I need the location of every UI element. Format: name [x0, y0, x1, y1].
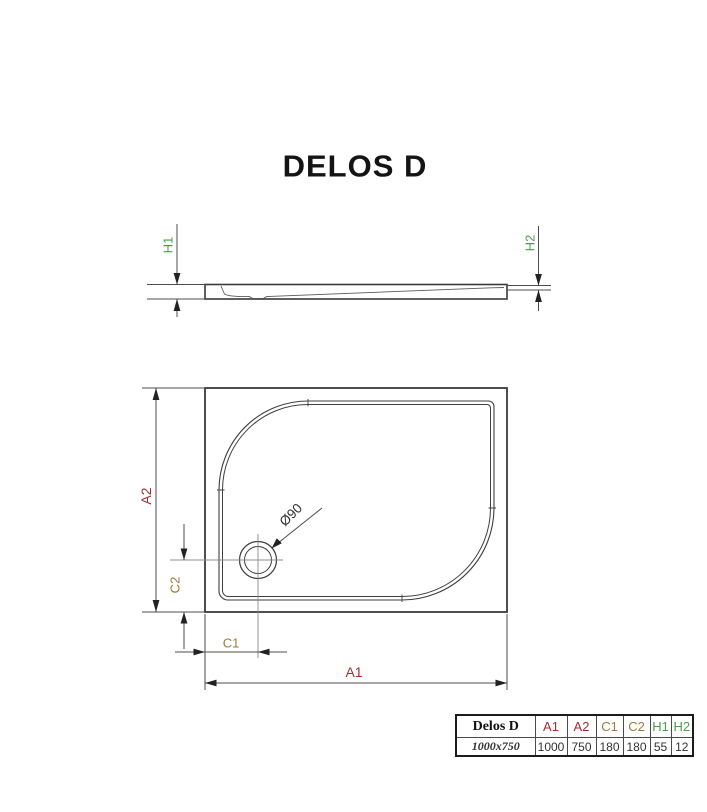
spec-value-h2: 12: [671, 738, 693, 757]
c1-arrow-left: [258, 649, 270, 656]
h1-arrow-up: [174, 299, 181, 311]
drain-leader-arrow: [272, 538, 282, 548]
spec-header-a2: A2: [567, 715, 596, 738]
spec-header-model: Delos D: [456, 715, 535, 738]
spec-header-h1: H1: [650, 715, 671, 738]
h2-dimension-label: H2: [524, 235, 537, 252]
h2-extension-lines: [507, 286, 551, 291]
c2-arrow-up: [181, 612, 188, 624]
side-view: [205, 285, 507, 300]
c1-arrow-right: [194, 649, 206, 656]
drawing-sheet: DELOS D H1 H2 A2 C2 C1 A1 Ø90 Delos D A1…: [0, 0, 707, 812]
spec-header-a1: A1: [535, 715, 567, 738]
top-view: [170, 388, 507, 658]
spec-table: Delos D A1 A2 C1 C2 H1 H2 1000x750 1000 …: [455, 714, 694, 757]
rim-segment-ticks: [217, 399, 496, 602]
h1-extension-lines: [147, 285, 205, 300]
a1-dimension: [205, 680, 507, 687]
technical-drawing: [0, 0, 707, 812]
h1-dimension: [147, 224, 205, 317]
c2-arrow-down: [181, 549, 188, 561]
a1-arrow-right: [496, 680, 508, 687]
basin-rim-outer: [219, 401, 494, 600]
a2-arrow-down: [153, 600, 160, 612]
spec-header-c1: C1: [596, 715, 623, 738]
c1-dimension-label: C1: [223, 637, 240, 650]
spec-header-h2: H2: [671, 715, 693, 738]
a2-dimension-label: A2: [139, 487, 153, 504]
c1-dimension: [175, 614, 507, 690]
spec-value-h1: 55: [650, 738, 671, 757]
h2-arrow-up: [535, 290, 542, 302]
spec-value-a1: 1000: [535, 738, 567, 757]
a1-arrow-left: [205, 680, 217, 687]
spec-value-a2: 750: [567, 738, 596, 757]
page-title: DELOS D: [283, 151, 428, 182]
h1-arrow-down: [174, 273, 181, 285]
h2-arrow-down: [535, 274, 542, 286]
spec-value-c1: 180: [596, 738, 623, 757]
h1-dimension-label: H1: [162, 237, 175, 254]
a2-arrow-up: [153, 388, 160, 400]
a1-dimension-label: A1: [345, 665, 362, 679]
spec-header-c2: C2: [623, 715, 650, 738]
side-view-basin-profile: [221, 286, 504, 298]
spec-value-size: 1000x750: [456, 738, 535, 757]
spec-table-header-row: Delos D A1 A2 C1 C2 H1 H2: [456, 715, 693, 738]
spec-value-c2: 180: [623, 738, 650, 757]
basin-rim-inner: [223, 405, 491, 597]
spec-table-value-row: 1000x750 1000 750 180 180 55 12: [456, 738, 693, 757]
c2-dimension-label: C2: [169, 577, 182, 594]
